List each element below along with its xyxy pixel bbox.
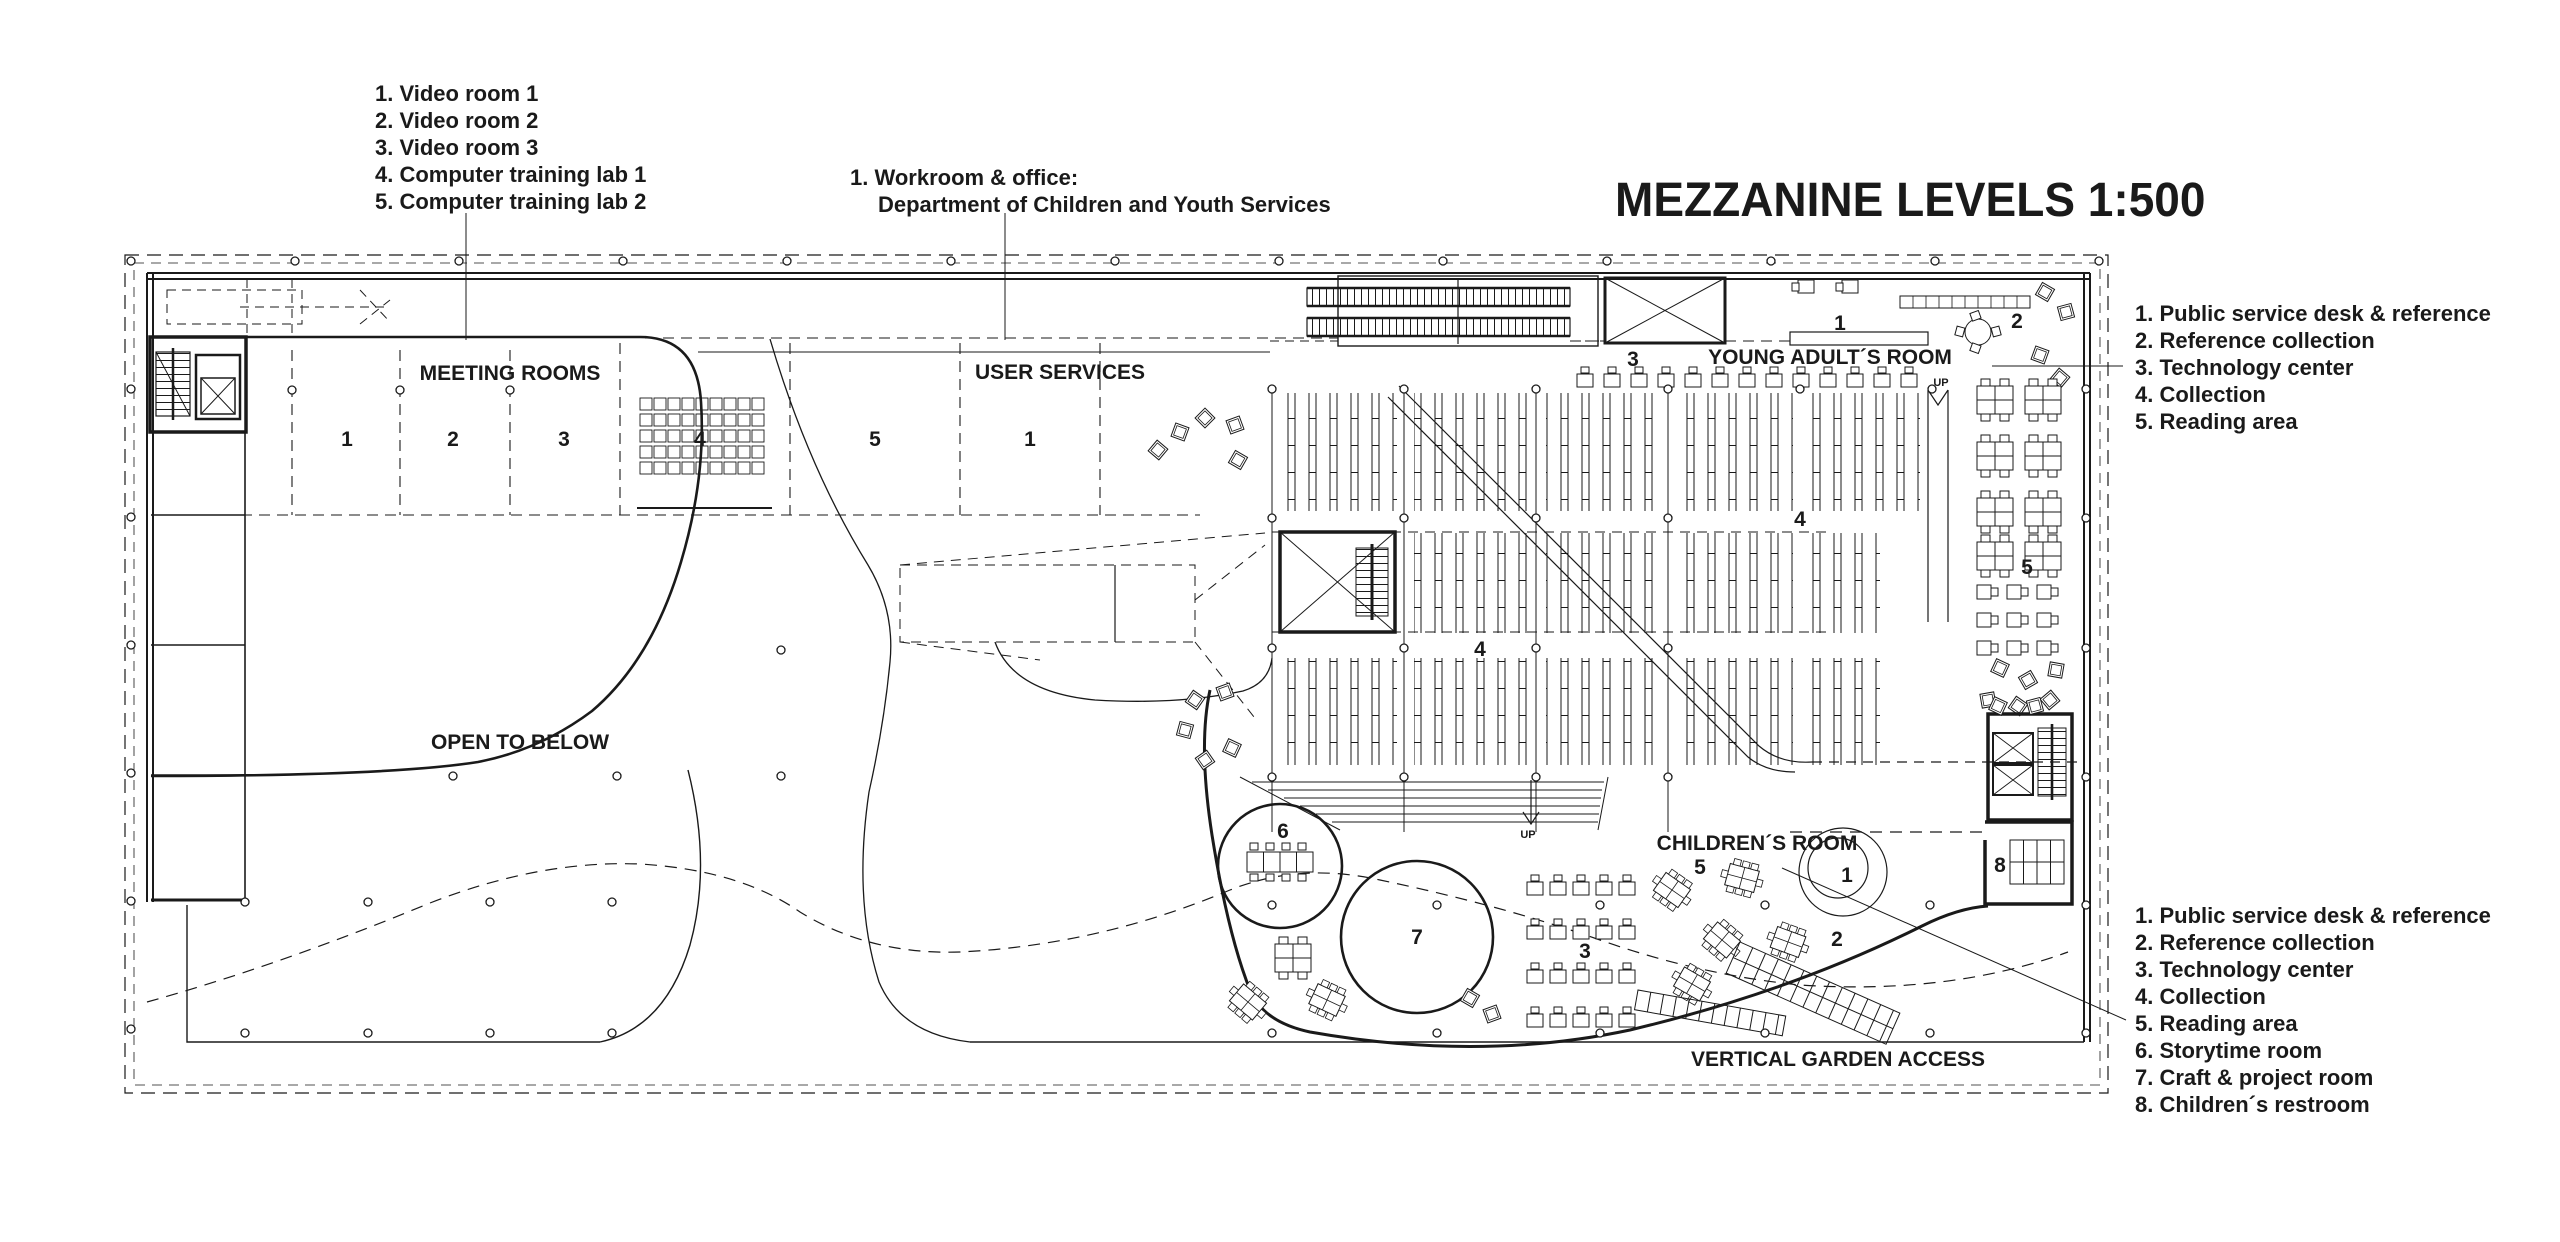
room-number-ya-desk-1: 1 bbox=[1834, 312, 1846, 335]
void-xbox-top bbox=[1605, 278, 1725, 343]
room-number-ya-reading-5: 5 bbox=[2021, 556, 2033, 579]
ya-up-escalator bbox=[1928, 390, 1948, 622]
childrens-tables-left bbox=[1221, 937, 1353, 1029]
label-childrens-room: CHILDREN´S ROOM bbox=[1657, 832, 1858, 855]
legend-item: 7. Craft & project room bbox=[2135, 1064, 2491, 1091]
legend-item: 3. Technology center bbox=[2135, 956, 2491, 983]
legend-video-rooms: 1. Video room 1 2. Video room 2 3. Video… bbox=[375, 80, 646, 215]
user-services-lounge bbox=[1148, 408, 1247, 469]
ya-single-desks bbox=[1977, 585, 2058, 655]
legend-item: 1. Workroom & office: bbox=[850, 164, 1331, 191]
computer-lab-desks bbox=[637, 398, 772, 508]
mezzanine-edge-dashed bbox=[147, 832, 2068, 1002]
open-to-below-void bbox=[151, 337, 1272, 1042]
legend-young-adults: 1. Public service desk & reference 2. Re… bbox=[2135, 300, 2491, 435]
legend-item: 4. Computer training lab 1 bbox=[375, 161, 646, 188]
up-label-amphitheater: UP bbox=[1520, 829, 1535, 841]
legend-workroom: 1. Workroom & office: Department of Chil… bbox=[850, 164, 1331, 218]
childrens-kid-tables bbox=[1645, 856, 1814, 1009]
entrance-canopy-dashed bbox=[167, 279, 390, 335]
legend-item: 3. Video room 3 bbox=[375, 134, 646, 161]
stair-elevator-core-right bbox=[1988, 697, 2072, 820]
ya-public-desk bbox=[1790, 332, 1928, 345]
room-number-meeting-1: 1 bbox=[341, 428, 353, 451]
label-vertical-garden-access: VERTICAL GARDEN ACCESS bbox=[1691, 1048, 1985, 1071]
room-number-ch-ref-2: 2 bbox=[1831, 928, 1843, 951]
childrens-lounge bbox=[1460, 988, 1501, 1023]
drawing-title: MEZZANINE LEVELS 1:500 bbox=[1615, 171, 2205, 228]
up-label-ya-escalator: UP bbox=[1933, 377, 1948, 389]
room-number-ya-tech-3: 3 bbox=[1627, 348, 1639, 371]
legend-item: 6. Storytime room bbox=[2135, 1037, 2491, 1064]
legend-item: 5. Computer training lab 2 bbox=[375, 188, 646, 215]
escalator-bank bbox=[1270, 276, 1605, 346]
ya-top-desks bbox=[1792, 280, 1858, 293]
legend-item: 1. Public service desk & reference bbox=[2135, 300, 2491, 327]
room-partitions-dashed bbox=[151, 338, 1790, 515]
label-user-services: USER SERVICES bbox=[975, 361, 1145, 384]
ya-round-table bbox=[1955, 311, 2001, 354]
legend-item: 4. Collection bbox=[2135, 983, 2491, 1010]
legend-item: 2. Reference collection bbox=[2135, 327, 2491, 354]
room-number-collection-4a: 4 bbox=[1474, 638, 1486, 661]
legend-item: 2. Video room 2 bbox=[375, 107, 646, 134]
legend-childrens: 1. Public service desk & reference 2. Re… bbox=[2135, 902, 2491, 1118]
room-number-ya-ref-2: 2 bbox=[2011, 310, 2023, 333]
room-number-ch-reading-5: 5 bbox=[1694, 856, 1706, 879]
legend-item: 2. Reference collection bbox=[2135, 929, 2491, 956]
room-number-ch-tech-3: 3 bbox=[1579, 940, 1591, 963]
legend-item: 1. Public service desk & reference bbox=[2135, 902, 2491, 929]
room-number-meeting-2: 2 bbox=[447, 428, 459, 451]
room-number-meeting-3: 3 bbox=[558, 428, 570, 451]
label-young-adults-room: YOUNG ADULT´S ROOM bbox=[1708, 346, 1952, 369]
room-number-lab-4: 4 bbox=[694, 428, 706, 451]
legend-item: 4. Collection bbox=[2135, 381, 2491, 408]
legend-item: Department of Children and Youth Service… bbox=[850, 191, 1331, 218]
ya-reference-shelf bbox=[1900, 296, 2030, 308]
room-number-restroom-8: 8 bbox=[1994, 854, 2006, 877]
label-meeting-rooms: MEETING ROOMS bbox=[420, 362, 601, 385]
legend-item: 5. Reading area bbox=[2135, 408, 2491, 435]
ya-reading-tables bbox=[1977, 379, 2061, 577]
room-number-collection-4b: 4 bbox=[1794, 508, 1806, 531]
room-number-storytime-6: 6 bbox=[1277, 820, 1289, 843]
legend-item: 8. Children´s restroom bbox=[2135, 1091, 2491, 1118]
elevator-core-mid bbox=[1280, 532, 1395, 632]
label-open-to-below: OPEN TO BELOW bbox=[431, 731, 609, 754]
legend-item: 1. Video room 1 bbox=[375, 80, 646, 107]
amphitheater-steps bbox=[1240, 777, 1608, 830]
room-number-user-services-1: 1 bbox=[1024, 428, 1036, 451]
legend-item: 3. Technology center bbox=[2135, 354, 2491, 381]
left-rooms-column bbox=[151, 432, 245, 902]
room-number-ch-desk-1: 1 bbox=[1841, 864, 1853, 887]
room-number-lab-5: 5 bbox=[869, 428, 881, 451]
storytime-table bbox=[1247, 843, 1313, 881]
stair-elevator-core-topleft bbox=[150, 337, 246, 432]
room-number-craft-7: 7 bbox=[1411, 926, 1423, 949]
legend-item: 5. Reading area bbox=[2135, 1010, 2491, 1037]
